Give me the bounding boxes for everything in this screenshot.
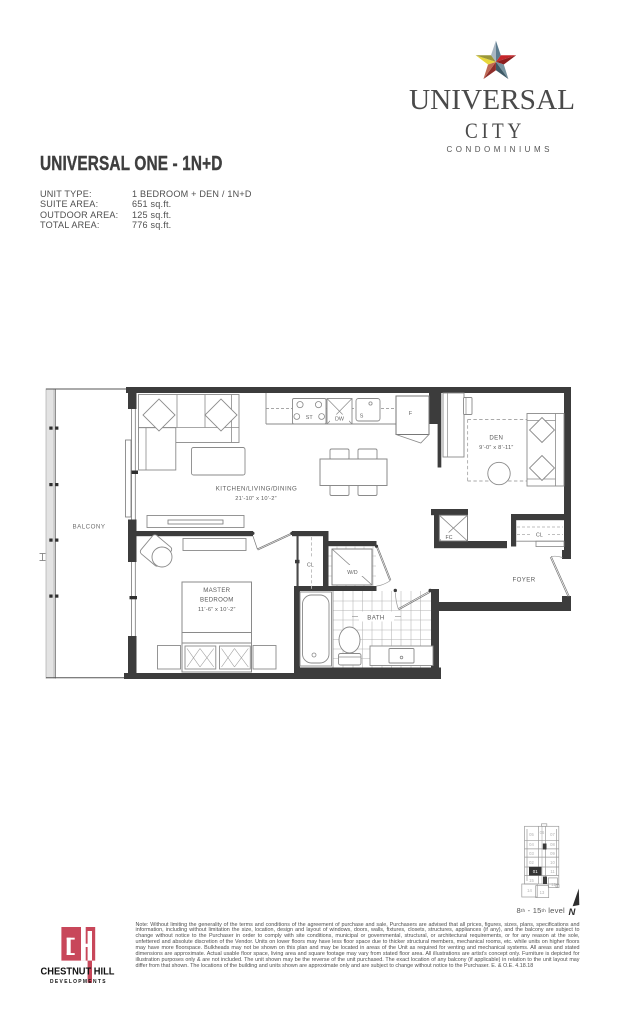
svg-text:04: 04 — [529, 842, 534, 847]
svg-text:05: 05 — [529, 832, 534, 837]
svg-text:07: 07 — [550, 832, 555, 837]
svg-text:21’-10” x 10’-2”: 21’-10” x 10’-2” — [235, 496, 276, 502]
svg-text:08: 08 — [550, 842, 555, 847]
svg-text:MASTER: MASTER — [203, 587, 230, 594]
svg-text:BATH: BATH — [367, 615, 384, 622]
svg-text:03: 03 — [529, 851, 534, 856]
svg-text:15: 15 — [529, 878, 534, 883]
svg-text:09: 09 — [550, 851, 555, 856]
svg-text:10: 10 — [550, 860, 555, 865]
svg-text:F: F — [409, 411, 413, 417]
svg-text:01: 01 — [533, 869, 538, 874]
svg-text:9’-0” x 8’-11”: 9’-0” x 8’-11” — [479, 445, 513, 451]
svg-text:D E V E L O P M E N T S: D E V E L O P M E N T S — [50, 979, 106, 985]
svg-text:11: 11 — [550, 869, 555, 874]
svg-text:02: 02 — [529, 860, 534, 865]
svg-text:FC: FC — [445, 535, 452, 541]
svg-text:BALCONY: BALCONY — [72, 524, 105, 531]
svg-text:11’-6” x 10’-2”: 11’-6” x 10’-2” — [198, 607, 236, 613]
svg-text:8th - 15th level: 8th - 15th level — [517, 906, 565, 915]
svg-text:06: 06 — [540, 830, 545, 835]
svg-text:DW: DW — [335, 417, 345, 423]
svg-text:CL: CL — [536, 533, 543, 539]
svg-text:UNIVERSAL: UNIVERSAL — [409, 84, 575, 116]
svg-text:CHESTNUT HILL: CHESTNUT HILL — [41, 966, 116, 978]
svg-text:12: 12 — [551, 882, 556, 887]
svg-text:CL: CL — [307, 563, 314, 569]
svg-text:FOYER: FOYER — [513, 577, 536, 584]
svg-text:W/D: W/D — [347, 570, 358, 576]
svg-text:14: 14 — [527, 888, 532, 893]
svg-text:BEDROOM: BEDROOM — [200, 597, 234, 604]
svg-text:N: N — [569, 907, 577, 918]
svg-text:ST: ST — [306, 415, 314, 421]
svg-text:S: S — [360, 414, 364, 420]
svg-text:DEN: DEN — [489, 435, 503, 442]
svg-text:13: 13 — [540, 890, 545, 895]
svg-text:KITCHEN/LIVING/DINING: KITCHEN/LIVING/DINING — [216, 486, 297, 493]
